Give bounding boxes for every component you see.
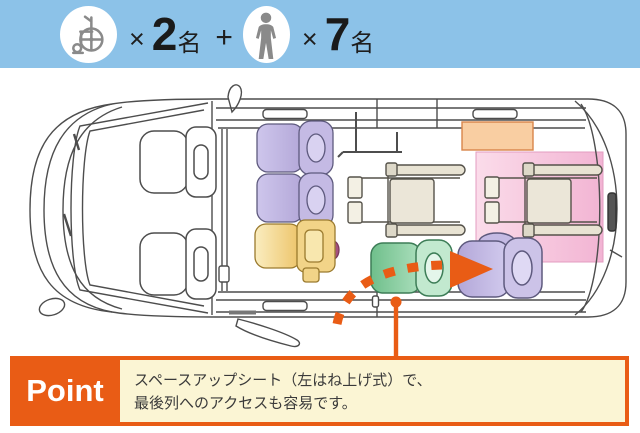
front-seat-driver bbox=[140, 127, 216, 197]
person-badge bbox=[243, 6, 290, 63]
point-text-line1: スペースアップシート（左はね上げ式）で、 bbox=[134, 369, 625, 392]
times-sign: × bbox=[302, 24, 318, 55]
wheelchair-unit: 名 bbox=[177, 23, 201, 58]
front-seat-passenger bbox=[140, 229, 216, 299]
mirror-bottom bbox=[236, 319, 299, 346]
wheelchair-badge bbox=[60, 6, 117, 63]
person-unit: 名 bbox=[350, 23, 374, 58]
person-count: 7 bbox=[325, 7, 350, 61]
capacity-bar: × 2 名 + × 7 名 bbox=[0, 0, 640, 68]
wheelchair-icon bbox=[67, 12, 111, 56]
point-section: Point スペースアップシート（左はね上げ式）で、 最後列へのアクセスも容易で… bbox=[10, 356, 629, 426]
point-label: Point bbox=[10, 356, 120, 426]
point-text-box: スペースアップシート（左はね上げ式）で、 最後列へのアクセスも容易です。 bbox=[120, 360, 625, 422]
person-icon bbox=[247, 9, 285, 59]
rear-panel bbox=[462, 122, 533, 150]
wheelchair-count: 2 bbox=[152, 7, 177, 61]
second-row-bench bbox=[257, 121, 333, 227]
page: × 2 名 + × 7 名 Point スペースアップシート（左はね上げ式）で、… bbox=[0, 0, 640, 433]
times-sign: × bbox=[129, 24, 145, 55]
plus-sign: + bbox=[215, 21, 233, 55]
point-text-line2: 最後列へのアクセスも容易です。 bbox=[134, 392, 625, 415]
